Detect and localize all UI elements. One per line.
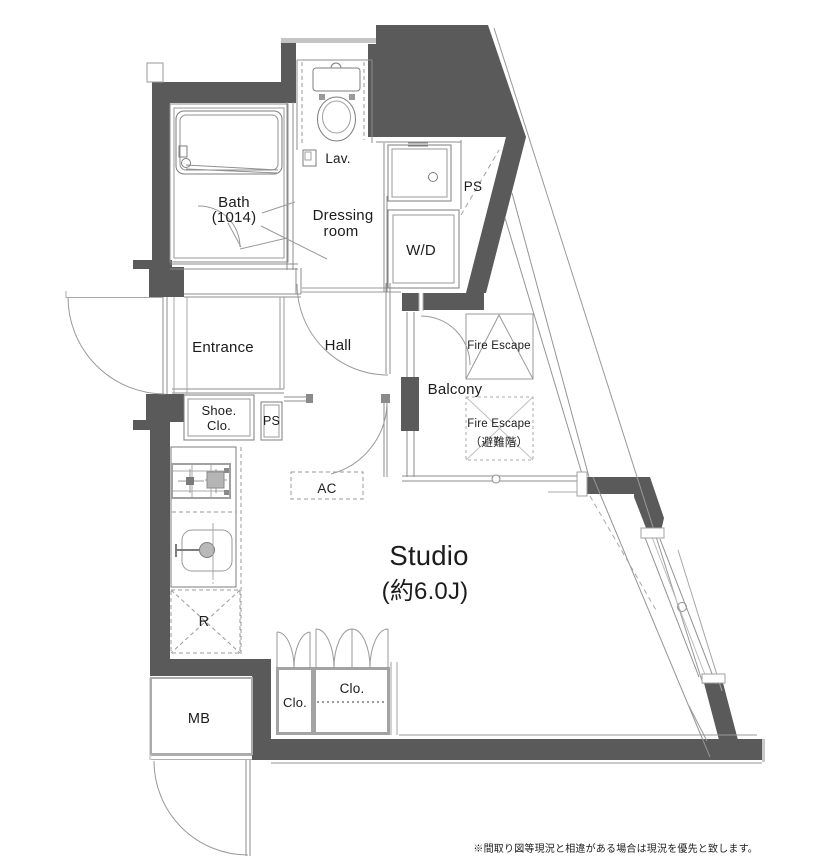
svg-text:Fire Escape: Fire Escape [467, 340, 531, 352]
svg-text:AC: AC [317, 481, 336, 496]
svg-text:PS: PS [263, 414, 280, 428]
svg-text:W/D: W/D [406, 242, 436, 259]
svg-text:Fire Escape: Fire Escape [467, 418, 531, 430]
svg-text:R: R [199, 614, 210, 630]
svg-text:Dressing: Dressing [313, 207, 374, 224]
svg-text:room: room [324, 223, 359, 240]
svg-text:(1014): (1014) [212, 209, 257, 226]
svg-text:Entrance: Entrance [192, 339, 254, 356]
svg-text:Clo.: Clo. [207, 418, 231, 433]
svg-text:PS: PS [464, 179, 482, 194]
svg-text:Clo.: Clo. [283, 695, 307, 710]
svg-text:Studio: Studio [389, 540, 468, 571]
svg-text:MB: MB [188, 711, 210, 727]
svg-text:（避難階）: （避難階） [470, 435, 529, 449]
svg-text:Balcony: Balcony [428, 381, 483, 398]
svg-text:Clo.: Clo. [340, 681, 365, 696]
svg-text:Lav.: Lav. [325, 151, 350, 166]
svg-text:(約6.0J): (約6.0J) [382, 578, 469, 605]
svg-text:Shoe.: Shoe. [202, 403, 237, 418]
svg-text:Hall: Hall [325, 337, 352, 354]
svg-text:※間取り図等現況と相違がある場合は現況を優先と致します。: ※間取り図等現況と相違がある場合は現況を優先と致します。 [473, 842, 758, 855]
